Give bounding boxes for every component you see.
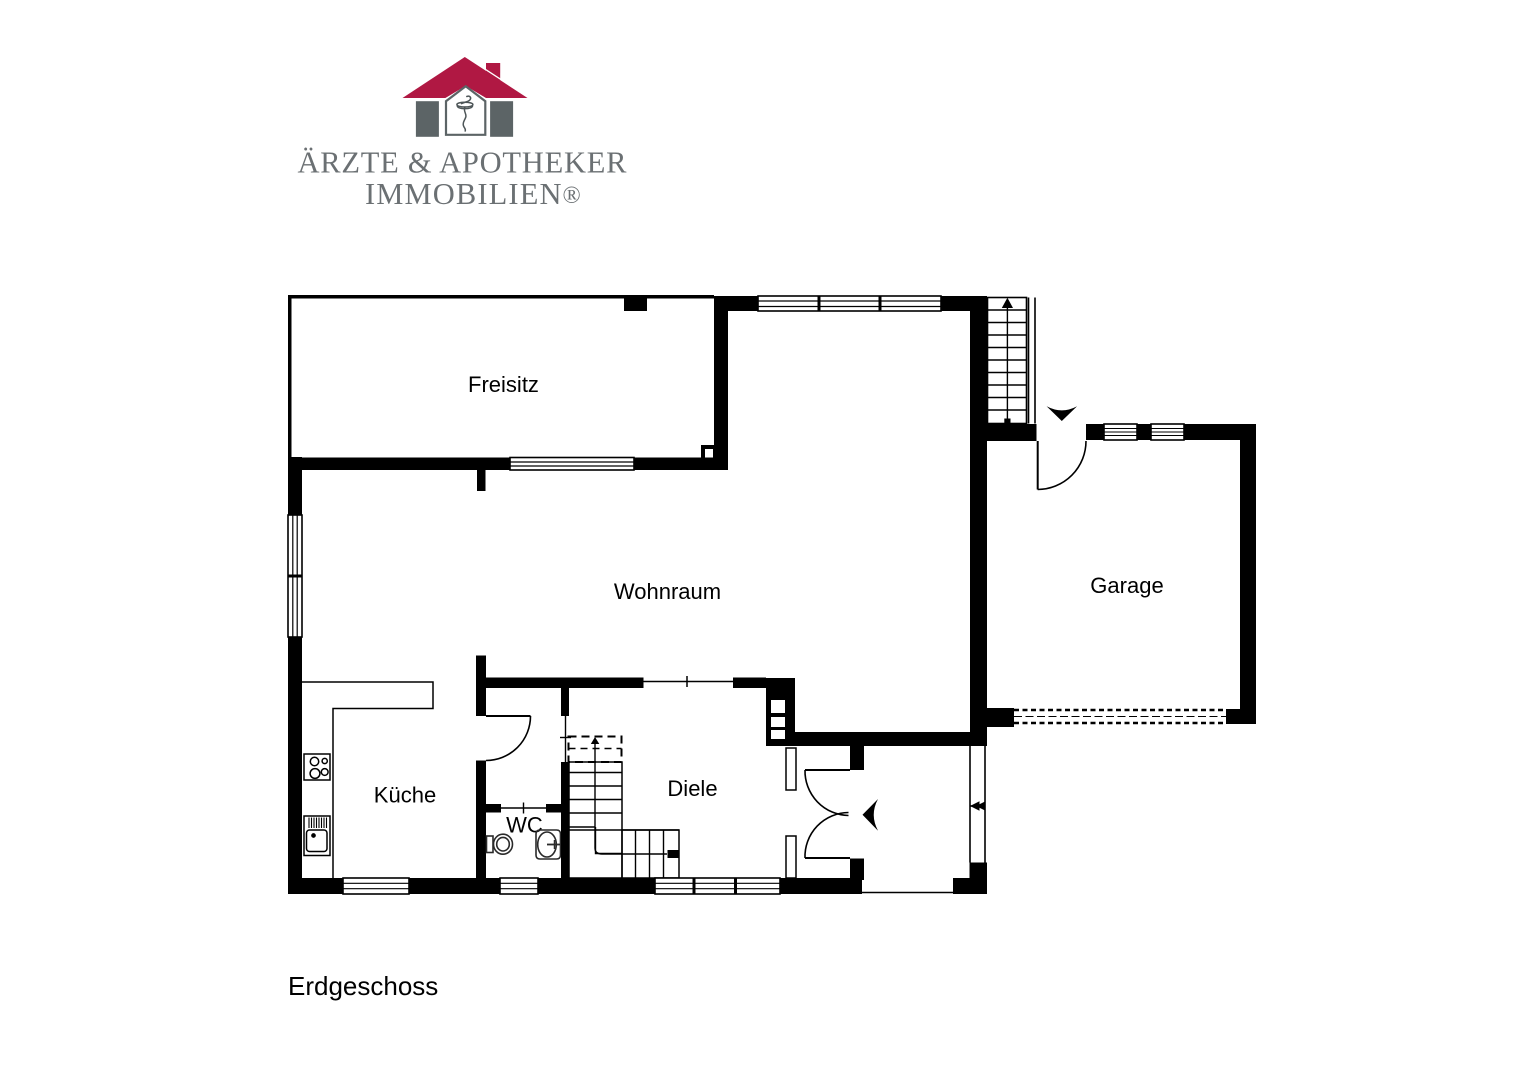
svg-text:Garage: Garage	[1090, 573, 1163, 598]
svg-text:Küche: Küche	[374, 783, 436, 808]
svg-text:Wohnraum: Wohnraum	[614, 579, 721, 604]
svg-text:Erdgeschoss: Erdgeschoss	[288, 971, 438, 1001]
svg-text:WC: WC	[506, 813, 543, 838]
svg-text:ÄRZTE & APOTHEKER: ÄRZTE & APOTHEKER	[298, 146, 628, 180]
svg-text:Freisitz: Freisitz	[468, 372, 539, 397]
svg-text:Diele: Diele	[667, 776, 717, 801]
svg-text:®: ®	[563, 183, 581, 209]
svg-text:IMMOBILIEN: IMMOBILIEN	[365, 177, 562, 211]
